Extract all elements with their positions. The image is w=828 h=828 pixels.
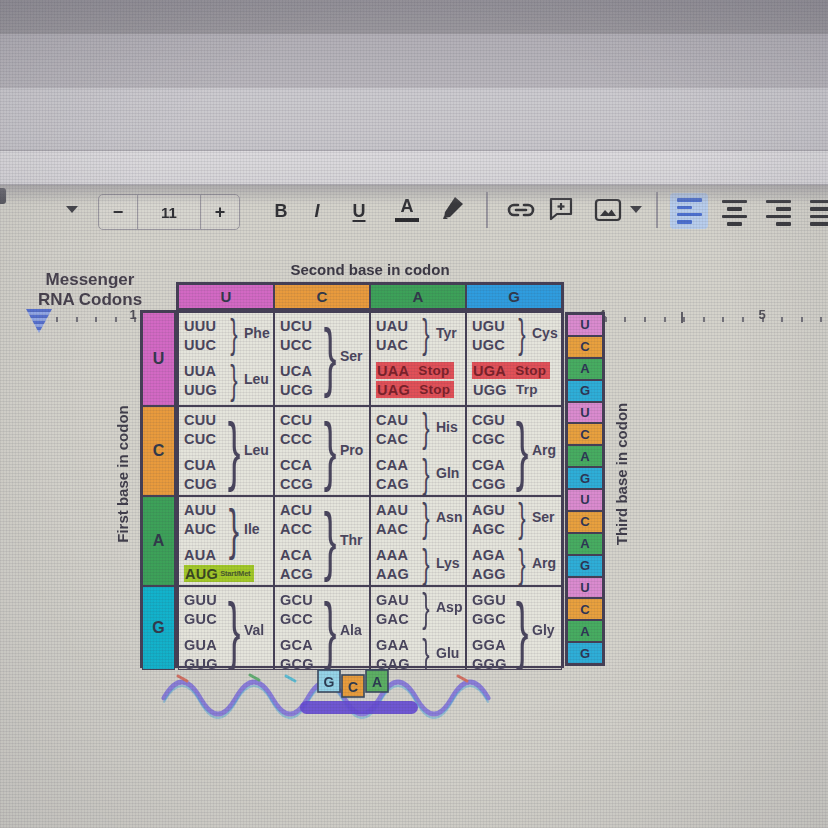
codon-cell-uc: UCU UCC UCA UCG } Ser [274,312,370,406]
third-base-a: A [567,620,603,642]
third-base-u: U [567,402,603,424]
header-base-u: U [178,284,274,309]
ruler-shadow [0,184,828,204]
toolbar: − 11 + B I U A [0,88,828,150]
amino-acid-label: Phe [244,325,270,341]
codon-cell-aa: AAU AAC AAA AAG } Asn } Lys [370,496,466,586]
menu-bar: Help Last edit was 9 minutes ago [0,34,828,89]
first-base-g: G [142,586,175,670]
brace: } [229,313,239,355]
third-base-g: G [567,467,603,489]
google-docs-screenshot: Help Last edit was 9 minutes ago − 11 + … [0,0,828,828]
codon-line: UGGTrp [472,381,542,398]
figure-title: Messenger RNA Codons [14,270,166,310]
brace: } [229,359,239,401]
codon-cell-ug: UGU UGC UGAStop UGGTrp } Cys [466,312,562,406]
brace: } [518,409,527,491]
amino-acid-label: Arg [532,555,556,571]
third-base-g: G [567,642,603,664]
ruler-halftick [681,312,683,323]
decoration-base-a: A [372,674,382,690]
brace: } [421,407,431,449]
text-color-bar [395,218,419,222]
brace: } [421,313,431,355]
second-base-label: Second base in codon [176,261,564,278]
brace: } [326,409,335,491]
brace: } [517,543,527,585]
amino-acid-label: Lys [436,555,460,571]
brace: } [326,589,335,670]
third-base-a: A [567,445,603,467]
third-base-c: C [567,598,603,620]
codon-cell-cc: CCU CCC CCA CCG } Pro [274,406,370,496]
codon-grid: UUU UUC UUA UUG } Phe } Leu UCU UCC UCA … [176,310,564,668]
third-base-c: C [567,511,603,533]
third-base-a: A [567,358,603,380]
ruler: 1 2 3 4 5 [0,150,828,185]
codon-cell-gu: GUU GUC GUA GUG } Val [178,586,274,670]
amino-acid-label: Leu [244,442,269,458]
third-base-c: C [567,336,603,358]
codon-cell-ac: ACU ACC ACA ACG } Thr [274,496,370,586]
amino-acid-label: Ile [244,521,260,537]
first-base-a: A [142,496,175,586]
rna-strand-decoration: G C A [158,660,494,722]
third-base-column: U C A G U C A G U C A G U C A G [565,312,605,666]
amino-acid-label: Val [244,622,264,638]
amino-acid-label: His [436,419,458,435]
amino-acid-label: Tyr [436,325,457,341]
amino-acid-label: Arg [532,442,556,458]
brace: } [326,499,335,581]
third-base-u: U [567,489,603,511]
brace: } [518,589,527,670]
codon-cell-ca: CAU CAC CAA CAG } His } Gln [370,406,466,496]
codon-cell-au: AUU AUC AUA AUGStart/Met } Ile [178,496,274,586]
header-base-g: G [466,284,562,309]
stop-codon-highlight: UAGStop [376,381,454,398]
amino-acid-label: Glu [436,645,459,661]
codon-cell-cu: CUU CUC CUA CUG } Leu [178,406,274,496]
ruler-mark: 5 [758,307,765,322]
ribosome-bar [300,701,418,714]
amino-acid-label: Gly [532,622,555,638]
indent-marker[interactable] [26,309,52,333]
first-base-column: U C A G [140,310,177,668]
stop-codon-highlight: UGAStop [472,362,550,379]
amino-acid-label: Cys [532,325,558,341]
header-base-a: A [370,284,466,309]
first-base-label: First base in codon [114,405,131,543]
brace: } [326,315,335,397]
brace: } [517,313,527,355]
image-dropdown-caret-icon[interactable] [630,206,642,213]
brace: } [229,497,239,561]
brace: } [421,587,431,629]
amino-acid-label: Pro [340,442,363,458]
codon-cell-cg: CGU CGC CGA CGG } Arg [466,406,562,496]
third-base-a: A [567,533,603,555]
brace: } [421,543,431,585]
amino-acid-label: Asp [436,599,462,615]
brace: } [230,409,239,491]
brace: } [421,453,431,495]
third-base-g: G [567,555,603,577]
header-base-c: C [274,284,370,309]
brace: } [517,497,527,539]
third-base-u: U [567,314,603,336]
brace: } [421,497,431,539]
decoration-base-c: C [348,679,358,695]
amino-acid-label: Leu [244,371,269,387]
codon-cell-gg: GGU GGC GGA GGG } Gly [466,586,562,670]
amino-acid-label: Ser [340,348,363,364]
amino-acid-label: Ala [340,622,362,638]
amino-acid-label: Gln [436,465,459,481]
codon-cell-gc: GCU GCC GCA GCG } Ala [274,586,370,670]
brace: } [230,589,239,670]
second-base-header-row: U C A G [176,282,564,311]
codon-cell-uu: UUU UUC UUA UUG } Phe } Leu [178,312,274,406]
codon-cell-ua: UAU UAC UAAStop UAGStop } Tyr [370,312,466,406]
browser-top-band [0,0,828,34]
decoration-base-g: G [324,674,335,690]
amino-acid-label: Thr [340,532,363,548]
third-base-g: G [567,380,603,402]
stop-codon-highlight: UAAStop [376,362,454,379]
third-base-u: U [567,577,603,599]
first-base-c: C [142,406,175,496]
amino-acid-label: Asn [436,509,462,525]
codon-cell-ag: AGU AGC AGA AGG } Ser } Arg [466,496,562,586]
first-base-u: U [142,312,175,406]
start-codon-highlight: AUGStart/Met [184,565,254,582]
amino-acid-label: Ser [532,509,555,525]
codon-cell-ga: GAU GAC GAA GAG } Asp } Glu [370,586,466,670]
third-base-label: Third base in codon [613,403,630,546]
font-dropdown-caret-icon[interactable] [66,206,78,213]
third-base-c: C [567,423,603,445]
